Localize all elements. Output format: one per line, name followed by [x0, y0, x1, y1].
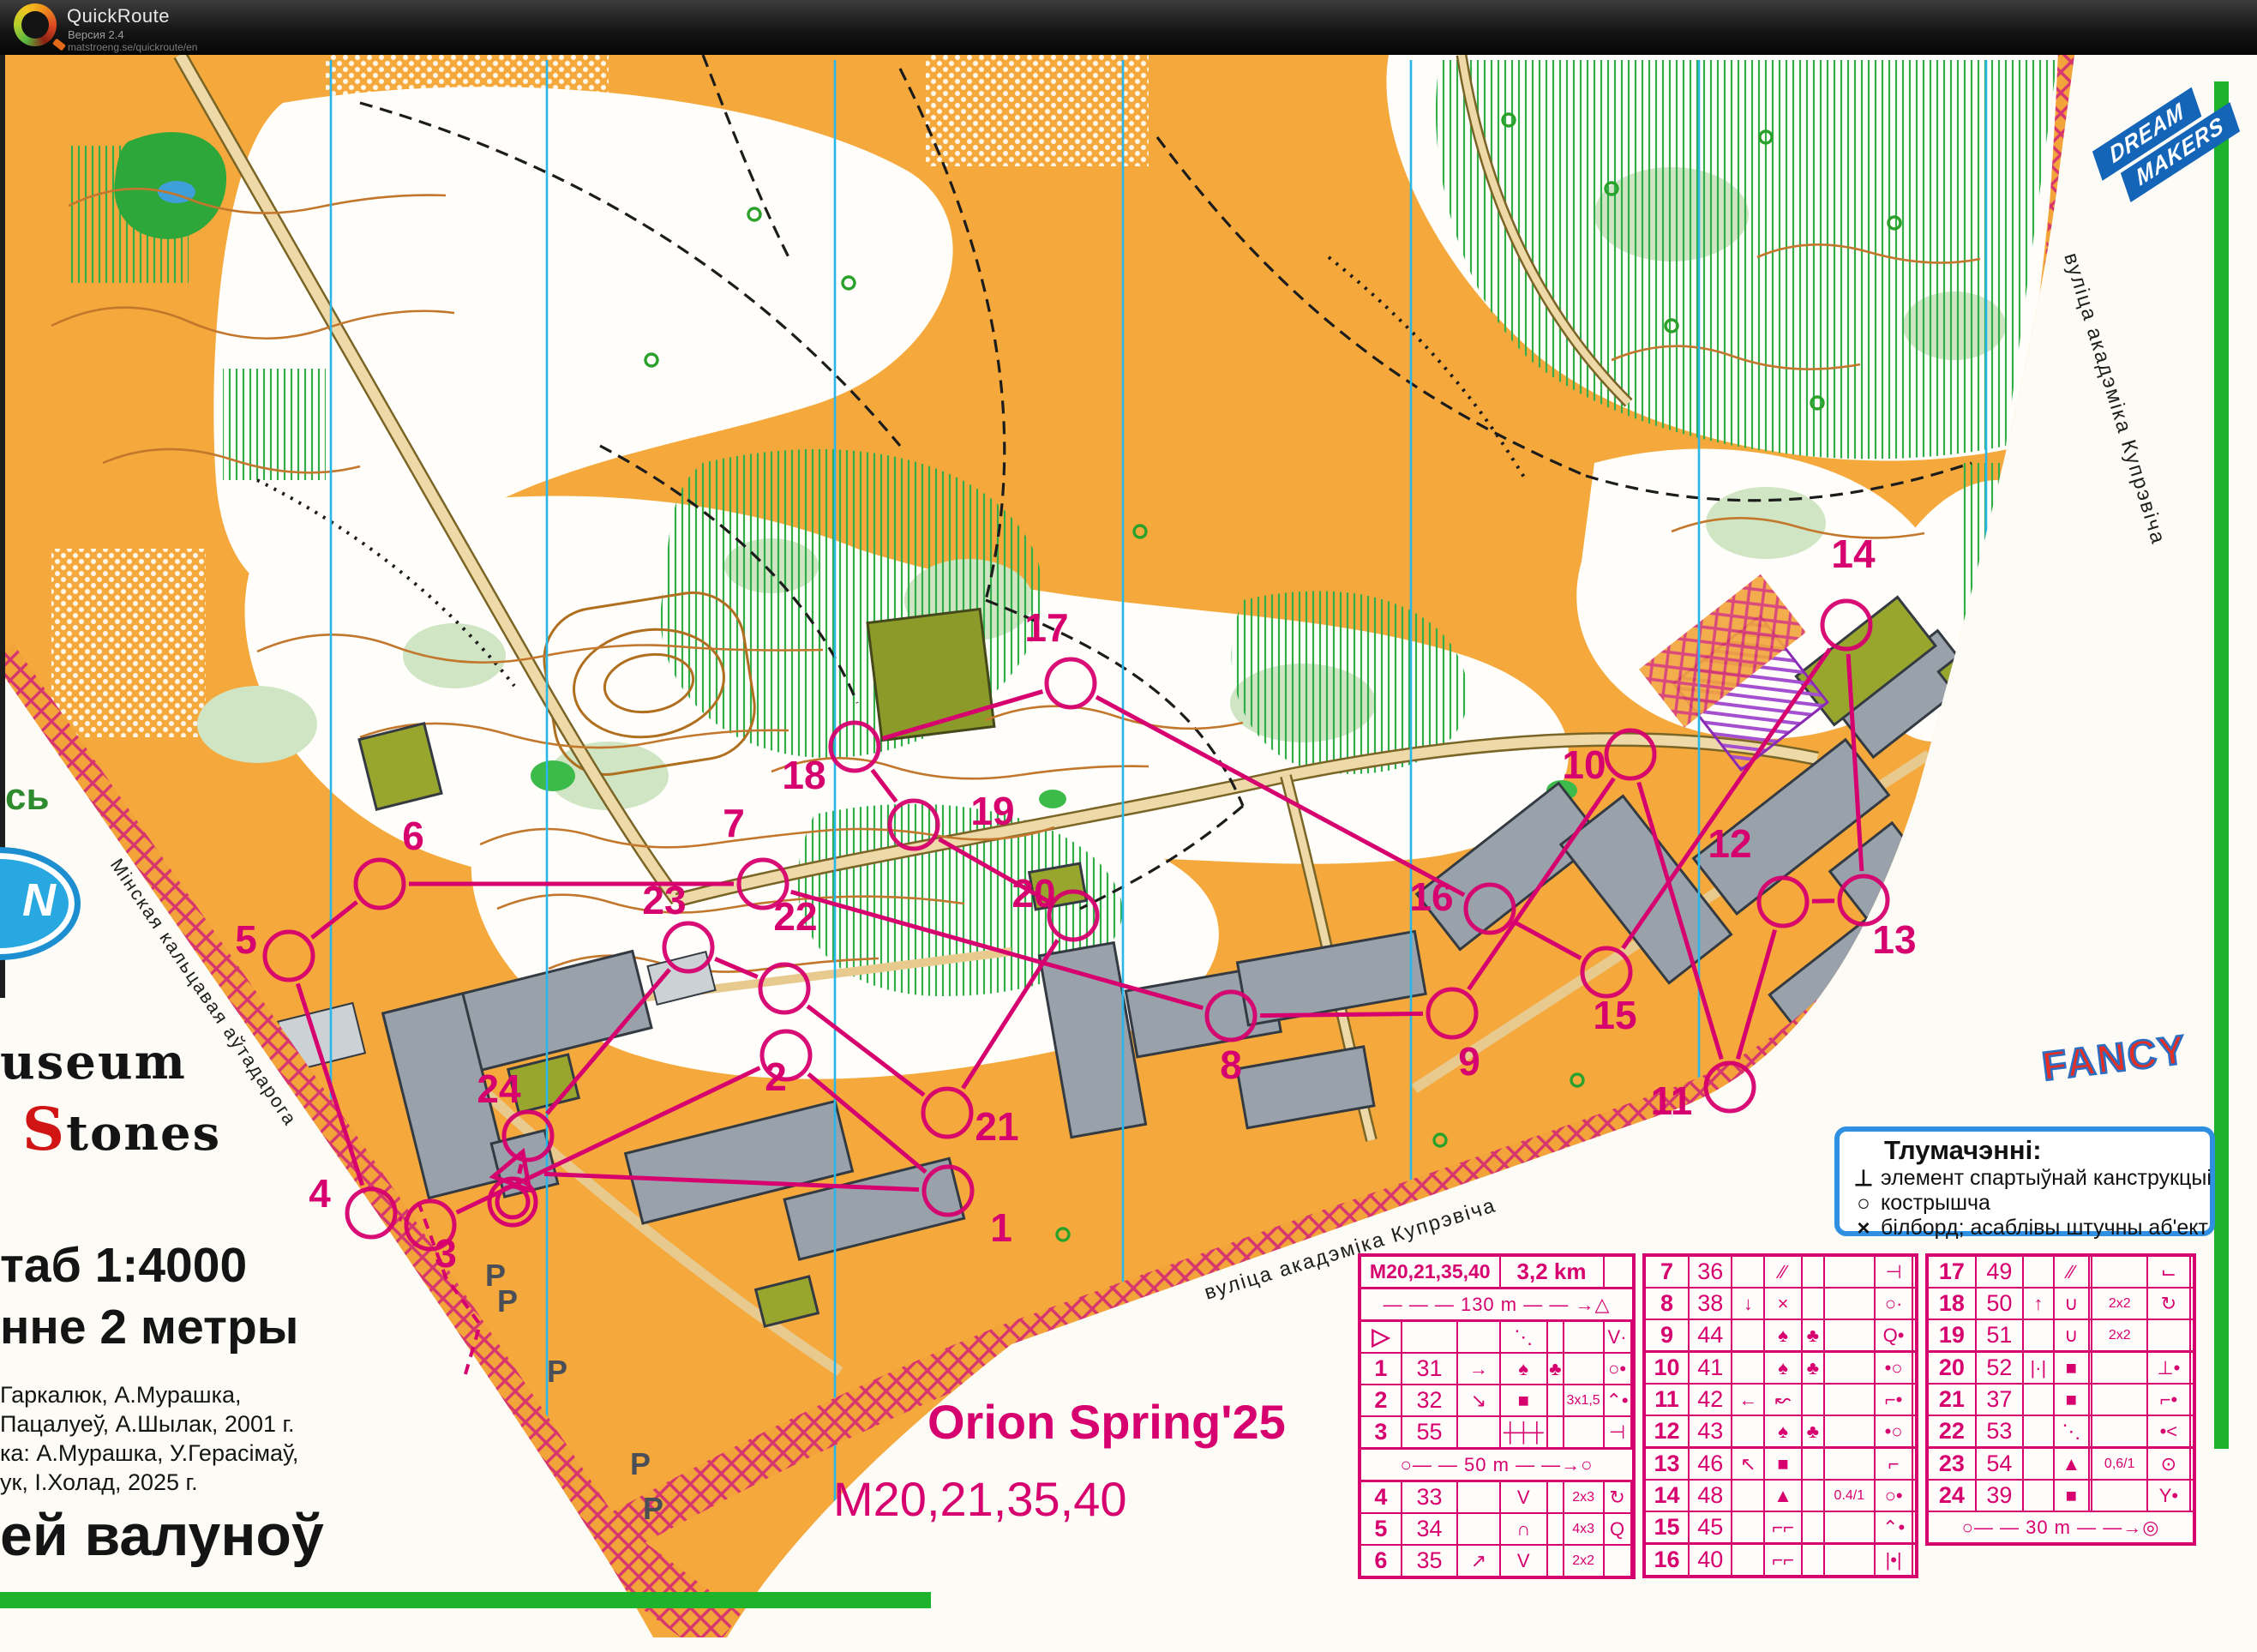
- ctrl-desc-cell: [1824, 1352, 1875, 1385]
- ctrl-desc-row: 1243♠♣•○: [1644, 1415, 1917, 1448]
- side-text: сь: [5, 776, 50, 819]
- ctrl-desc-cell: 44: [1689, 1319, 1732, 1352]
- ctrl-desc-cell: [1631, 1385, 1634, 1416]
- ctrl-desc-cell: V: [1500, 1481, 1548, 1514]
- control-number: 14: [1831, 532, 1876, 576]
- ctrl-desc-cell: 46: [1689, 1448, 1732, 1481]
- ctrl-desc-row: ▷⋱V·: [1360, 1321, 1634, 1354]
- ctrl-desc-cell: ×: [1764, 1288, 1802, 1319]
- ctrl-desc-cell: 12: [1644, 1415, 1689, 1448]
- ctrl-desc-cell: ♣: [1802, 1319, 1824, 1352]
- ctrl-desc-cell: [1457, 1513, 1499, 1545]
- ctrl-desc-cell: [1732, 1415, 1764, 1448]
- ctrl-desc-cell: ↜: [1764, 1384, 1802, 1415]
- ctrl-desc-cell: 3x1,5: [1564, 1385, 1604, 1416]
- ctrl-desc-cell: ⌙: [2147, 1255, 2190, 1288]
- ctrl-desc-cell: 4: [1360, 1481, 1402, 1514]
- ctrl-desc-cell: [2190, 1319, 2194, 1352]
- map-border-right: [2214, 81, 2229, 1449]
- ctrl-desc-cell: ■: [2054, 1352, 2089, 1385]
- ctrl-desc-cell: [2190, 1415, 2194, 1448]
- ctrl-desc-cell: ⊣: [1604, 1416, 1631, 1449]
- course-leg-line: [1260, 1013, 1423, 1015]
- ctrl-desc-cell: [1732, 1544, 1764, 1577]
- ctrl-desc-cell: [1457, 1321, 1499, 1354]
- ctrl-desc-row: 1142←↜⌐•: [1644, 1384, 1917, 1415]
- ctrl-desc-cell: [1604, 1545, 1631, 1577]
- map-border-bottom: [0, 1592, 931, 1608]
- ctrl-desc-cell: 11: [1644, 1384, 1689, 1415]
- ctrl-desc-cell: [1547, 1481, 1564, 1514]
- ctrl-desc-cell: 0.4/1: [1824, 1480, 1875, 1511]
- ctrl-desc-cell: [1631, 1481, 1634, 1514]
- ctrl-desc-row: 635↗V2x2: [1360, 1545, 1634, 1577]
- ctrl-desc-cell: [1547, 1385, 1564, 1416]
- quickroute-header: QuickRoute Версия 2.4 matstroeng.se/quic…: [0, 0, 2257, 55]
- control-descriptions-3: 1749∕∕⌙1850↑∪2x2↻1951∪2x22052|·|■⊥•2137■…: [1925, 1253, 2196, 1546]
- control-number: 19: [970, 789, 1014, 833]
- ctrl-desc-cell: [1547, 1545, 1564, 1577]
- control-number: 5: [235, 917, 257, 962]
- ctrl-desc-cell: ∕∕: [1764, 1255, 1802, 1288]
- credit-line: Гаркалюк, А.Мурашка,: [0, 1380, 298, 1409]
- ctrl-desc-cell: 2x3: [1564, 1481, 1604, 1514]
- legend-item-label: білборд; асаблівы штучны аб'ект: [1881, 1216, 2208, 1241]
- ctrl-desc-cell: [1547, 1416, 1564, 1449]
- ctrl-desc-cell: ⌐⌐: [1764, 1511, 1802, 1544]
- ctrl-desc-cell: [1457, 1416, 1499, 1449]
- ctrl-desc-cell: 37: [1976, 1384, 2023, 1415]
- ctrl-desc-header-row: M20,21,35,403,2 km: [1360, 1255, 1634, 1289]
- ctrl-desc-row: 1545⌐⌐⌃•: [1644, 1511, 1917, 1544]
- ctrl-desc-cell: [1402, 1321, 1458, 1354]
- ctrl-desc-cell: 16: [1644, 1544, 1689, 1577]
- ctrl-desc-cell: ○·: [1875, 1288, 1912, 1319]
- ctrl-desc-cell: ♣: [1802, 1415, 1824, 1448]
- ctrl-desc-cell: [1824, 1544, 1875, 1577]
- ctrl-desc-cell: [2092, 1415, 2147, 1448]
- ctrl-desc-cell: [2190, 1384, 2194, 1415]
- control-descriptions-2: 736∕∕⊣838↓×○·944♠♣Q•1041♠♣•○1142←↜⌐•1243…: [1642, 1253, 1918, 1578]
- ctrl-desc-cell: [2092, 1255, 2147, 1288]
- ctrl-desc-cell: [1912, 1384, 1917, 1415]
- control-number: 22: [773, 894, 817, 939]
- control-number: 24: [477, 1066, 521, 1111]
- ctrl-desc-cell: [1912, 1255, 1917, 1288]
- control-number: 4: [309, 1171, 331, 1216]
- ctrl-desc-cell: ⌐: [1875, 1448, 1912, 1481]
- control-number: 10: [1562, 742, 1606, 787]
- club-logo-letter: N: [22, 874, 56, 927]
- ctrl-desc-cell: ♠: [1764, 1352, 1802, 1385]
- ctrl-desc-cell: [1912, 1448, 1917, 1481]
- ctrl-desc-cell: 34: [1402, 1513, 1458, 1545]
- control-number: 17: [1024, 605, 1068, 650]
- ctrl-desc-cell: [1564, 1353, 1604, 1385]
- ctrl-desc-cell: [1732, 1255, 1764, 1288]
- ctrl-desc-cell: 23: [1927, 1448, 1976, 1481]
- ctrl-desc-cell: 54: [1976, 1448, 2023, 1481]
- ctrl-desc-cell: [1802, 1448, 1824, 1481]
- ctrl-desc-cell: ■: [1500, 1385, 1548, 1416]
- ctrl-desc-cell: 2: [1360, 1385, 1402, 1416]
- ctrl-desc-cell: 48: [1689, 1480, 1732, 1511]
- ctrl-desc-cell: 31: [1402, 1353, 1458, 1385]
- museum-line2: Stones: [22, 1096, 221, 1164]
- ctrl-desc-row: 2253⋱•<: [1927, 1415, 2194, 1448]
- ctrl-desc-cell: ┼┼┼: [1500, 1416, 1548, 1449]
- ctrl-desc-row: 1640⌐⌐|•|: [1644, 1544, 1917, 1577]
- ctrl-desc-cell: 15: [1644, 1511, 1689, 1544]
- museum-rest: tones: [66, 1105, 221, 1162]
- ctrl-desc-row: 2354▲0,6/1⊙: [1927, 1448, 2194, 1481]
- ctrl-desc-cell: [1631, 1513, 1634, 1545]
- ctrl-desc-cell: [1631, 1545, 1634, 1577]
- museum-initial: S: [22, 1096, 66, 1164]
- ctrl-desc-cell: 10: [1644, 1352, 1689, 1385]
- ctrl-desc-row: 838↓×○·: [1644, 1288, 1917, 1319]
- parking-letter: P: [643, 1491, 663, 1526]
- ctrl-desc-cell: ○— — 50 m — —→○: [1360, 1449, 1634, 1481]
- ctrl-desc-cell: [1912, 1480, 1917, 1511]
- ctrl-desc-cell: 5: [1360, 1513, 1402, 1545]
- ctrl-desc-cell: [2023, 1448, 2054, 1481]
- ctrl-desc-cell: ⌐•: [1875, 1384, 1912, 1415]
- ctrl-desc-cell: [2190, 1480, 2194, 1511]
- ctrl-desc-cell: 2x2: [1564, 1545, 1604, 1577]
- ctrl-desc-row: 1951∪2x2: [1927, 1319, 2194, 1352]
- ctrl-desc-row: 2439■Y•: [1927, 1480, 2194, 1511]
- ctrl-desc-cell: [2190, 1352, 2194, 1385]
- ctrl-desc-cell: ■: [2054, 1384, 2089, 1415]
- ctrl-desc-cell: Y•: [2147, 1480, 2190, 1511]
- ctrl-desc-cell: [1564, 1321, 1604, 1354]
- ctrl-desc-cell: ♣: [1802, 1352, 1824, 1385]
- credit-line: Пацалуеў, А.Шылак, 2001 г.: [0, 1409, 298, 1439]
- ctrl-desc-cell: [2023, 1255, 2054, 1288]
- ctrl-desc-cell: [1824, 1384, 1875, 1415]
- ctrl-desc-cell: 4x3: [1564, 1513, 1604, 1545]
- control-number: 16: [1409, 874, 1453, 919]
- ctrl-desc-row: 1346↖■⌐: [1644, 1448, 1917, 1481]
- control-number: 1: [990, 1205, 1012, 1250]
- ctrl-desc-cell: [1457, 1481, 1499, 1514]
- ctrl-desc-cell: [1824, 1415, 1875, 1448]
- ctrl-desc-cell: [1912, 1352, 1917, 1385]
- ctrl-desc-cell: [1547, 1321, 1564, 1354]
- ctrl-desc-cell: 14: [1644, 1480, 1689, 1511]
- ctrl-desc-row: 2137■⌐•: [1927, 1384, 2194, 1415]
- ctrl-desc-cell: [1824, 1319, 1875, 1352]
- ctrl-desc-row: 1850↑∪2x2↻: [1927, 1288, 2194, 1319]
- legend-symbol-icon: ○: [1846, 1190, 1881, 1216]
- ctrl-desc-cell: ▲: [1764, 1480, 1802, 1511]
- ctrl-desc-cell: [2190, 1288, 2194, 1319]
- ctrl-desc-cell: 43: [1689, 1415, 1732, 1448]
- control-number: 18: [782, 753, 825, 797]
- ctrl-desc-cell: 2x2: [2092, 1319, 2147, 1352]
- ctrl-desc-cell: ←: [1732, 1384, 1764, 1415]
- legend-item: ×білборд; асаблівы штучны аб'ект: [1846, 1216, 2210, 1241]
- ctrl-desc-cell: 39: [1976, 1480, 2023, 1511]
- ctrl-desc-cell: 55: [1402, 1416, 1458, 1449]
- legend-item-label: элемент спартыўнай канструкцыі: [1881, 1166, 2212, 1191]
- app-url[interactable]: matstroeng.se/quickroute/en: [68, 41, 197, 53]
- ctrl-desc-cell: [1732, 1480, 1764, 1511]
- legend-title: Тлумачэнні:: [1884, 1135, 2210, 1166]
- legend-box: Тлумачэнні: ⊥элемент спартыўнай канструк…: [1834, 1126, 2215, 1236]
- ctrl-desc-cell: [1802, 1480, 1824, 1511]
- credit-line: ка: А.Мурашка, У.Герасімаў,: [0, 1439, 298, 1468]
- control-number: 21: [975, 1104, 1018, 1149]
- ctrl-desc-cell: ⊣: [1875, 1255, 1912, 1288]
- ctrl-desc-cell: [1732, 1352, 1764, 1385]
- ctrl-desc-cell: 38: [1689, 1288, 1732, 1319]
- control-number: 20: [1011, 871, 1055, 916]
- street-label: вуліца акадэміка Купрэвіча: [2059, 250, 2170, 548]
- control-number: 12: [1708, 821, 1751, 866]
- ctrl-desc-cell: Q: [1604, 1513, 1631, 1545]
- ctrl-desc-cell: [1802, 1511, 1824, 1544]
- ctrl-desc-cell: [1732, 1319, 1764, 1352]
- ctrl-desc-cell: •○: [1875, 1352, 1912, 1385]
- parking-letter: P: [630, 1446, 651, 1481]
- control-number: 6: [402, 814, 424, 858]
- ctrl-desc-cell: 33: [1402, 1481, 1458, 1514]
- ctrl-desc-distance-row: ○— — 30 m — —→◎: [1927, 1511, 2194, 1544]
- control-number: 15: [1593, 993, 1636, 1037]
- ctrl-desc-cell: [1547, 1513, 1564, 1545]
- parking-letter: P: [497, 1283, 518, 1319]
- ctrl-desc-cell: ○•: [1604, 1353, 1631, 1385]
- ctrl-desc-cell: [1912, 1319, 1917, 1352]
- ctrl-desc-cell: |·|: [2023, 1352, 2054, 1385]
- ctrl-desc-cell: ⋱: [1500, 1321, 1548, 1354]
- ctrl-desc-cell: [1824, 1255, 1875, 1288]
- ctrl-desc-cell: 19: [1927, 1319, 1976, 1352]
- museum-stones-title: useum Stones: [0, 1034, 221, 1164]
- ctrl-desc-cell: [1631, 1416, 1634, 1449]
- ctrl-desc-cell: ▲: [2054, 1448, 2089, 1481]
- ctrl-desc-cell: ⋱: [2054, 1415, 2089, 1448]
- ctrl-desc-cell: [2023, 1415, 2054, 1448]
- app-title: QuickRoute: [67, 5, 170, 27]
- ctrl-desc-cell: [1824, 1511, 1875, 1544]
- ctrl-desc-row: 232↘■3x1,5⌃•: [1360, 1385, 1634, 1416]
- ctrl-desc-distance-row: ○— — 50 m — —→○: [1360, 1449, 1634, 1481]
- ctrl-desc-cell: 24: [1927, 1480, 1976, 1511]
- course-classes: M20,21,35,40: [833, 1471, 1126, 1527]
- ctrl-desc-cell: 49: [1976, 1255, 2023, 1288]
- ctrl-desc-cell: ⌐•: [2147, 1384, 2190, 1415]
- ctrl-desc-cell: ♣: [1547, 1353, 1564, 1385]
- ctrl-desc-cell: ↻: [2147, 1288, 2190, 1319]
- ctrl-desc-cell: ○•: [1875, 1480, 1912, 1511]
- legend-symbol-icon: ⊥: [1846, 1165, 1881, 1192]
- ctrl-desc-cell: ■: [1764, 1448, 1802, 1481]
- ctrl-desc-cell: ■: [2054, 1480, 2089, 1511]
- ctrl-desc-row: 1448▲0.4/1○•: [1644, 1480, 1917, 1511]
- legend-item: ○кострышча: [1846, 1191, 2210, 1216]
- control-number: 8: [1220, 1042, 1242, 1087]
- ctrl-desc-cell: 35: [1402, 1545, 1458, 1577]
- ctrl-desc-cell: 40: [1689, 1544, 1732, 1577]
- ctrl-desc-cell: 51: [1976, 1319, 2023, 1352]
- ctrl-desc-cell: ↗: [1457, 1545, 1499, 1577]
- ctrl-desc-cell: ♠: [1500, 1353, 1548, 1385]
- ctrl-desc-row: 944♠♣Q•: [1644, 1319, 1917, 1352]
- ctrl-desc-cell: [1564, 1416, 1604, 1449]
- ctrl-desc-cell: V·: [1604, 1321, 1631, 1354]
- control-number: 9: [1458, 1039, 1480, 1084]
- ctrl-desc-cell: [2190, 1255, 2194, 1288]
- ctrl-desc-cell: •<: [2147, 1415, 2190, 1448]
- ctrl-desc-cell: ⌃•: [1604, 1385, 1631, 1416]
- ctrl-desc-row: 433V2x3↻: [1360, 1481, 1634, 1514]
- ctrl-desc-cell: 53: [1976, 1415, 2023, 1448]
- ctrl-desc-cell: [2023, 1319, 2054, 1352]
- control-number: 3: [435, 1231, 457, 1276]
- ctrl-desc-cell: →: [1457, 1353, 1499, 1385]
- control-number: 7: [723, 801, 745, 845]
- control-number: 11: [1651, 1078, 1693, 1123]
- ctrl-desc-cell: [2023, 1384, 2054, 1415]
- ctrl-desc-row: 355┼┼┼⊣: [1360, 1416, 1634, 1449]
- ctrl-desc-cell: ⊥•: [2147, 1352, 2190, 1385]
- ctrl-desc-cell: — — — 130 m — — →△: [1360, 1289, 1634, 1321]
- quickroute-logo-icon: [14, 3, 57, 46]
- ctrl-desc-cell: ∕∕: [2054, 1255, 2089, 1288]
- ctrl-desc-cell: 3,2 km: [1500, 1255, 1604, 1289]
- quickroute-window: Мінская кальцавая аўтадарогавуліца акадэ…: [0, 0, 2257, 1652]
- ctrl-desc-cell: 22: [1927, 1415, 1976, 1448]
- map-credits: Гаркалюк, А.Мурашка,Пацалуеў, А.Шылак, 2…: [0, 1380, 298, 1497]
- course-leg-line: [519, 1164, 522, 1174]
- ctrl-desc-cell: [1912, 1288, 1917, 1319]
- ctrl-desc-cell: V: [1500, 1545, 1548, 1577]
- ctrl-desc-cell: ⌃•: [1875, 1511, 1912, 1544]
- ctrl-desc-cell: [1912, 1511, 1917, 1544]
- ctrl-desc-cell: 13: [1644, 1448, 1689, 1481]
- ctrl-desc-cell: 17: [1927, 1255, 1976, 1288]
- ctrl-desc-cell: 20: [1927, 1352, 1976, 1385]
- ctrl-desc-cell: ♠: [1764, 1415, 1802, 1448]
- ctrl-desc-cell: [2147, 1319, 2190, 1352]
- ctrl-desc-row: 1041♠♣•○: [1644, 1352, 1917, 1385]
- ctrl-desc-cell: [1802, 1288, 1824, 1319]
- ctrl-desc-cell: ∪: [2054, 1319, 2089, 1352]
- legend-symbol-icon: ×: [1846, 1215, 1881, 1241]
- ctrl-desc-cell: 18: [1927, 1288, 1976, 1319]
- ctrl-desc-cell: 52: [1976, 1352, 2023, 1385]
- ctrl-desc-cell: 8: [1644, 1288, 1689, 1319]
- course-leg-line: [1812, 901, 1834, 902]
- ctrl-desc-cell: ∪: [2054, 1288, 2089, 1319]
- parking-letter: P: [547, 1354, 567, 1389]
- ctrl-desc-cell: [1912, 1415, 1917, 1448]
- ctrl-desc-cell: ↑: [2023, 1288, 2054, 1319]
- legend-item-label: кострышча: [1881, 1191, 1990, 1216]
- ctrl-desc-cell: 7: [1644, 1255, 1689, 1288]
- ctrl-desc-cell: 3: [1360, 1416, 1402, 1449]
- control-number: 13: [1872, 917, 1916, 962]
- ctrl-desc-cell: [1802, 1544, 1824, 1577]
- control-number: 2: [765, 1054, 787, 1099]
- ctrl-desc-cell: [2092, 1352, 2147, 1385]
- ctrl-desc-cell: ⊙: [2147, 1448, 2190, 1481]
- ctrl-desc-cell: [1802, 1255, 1824, 1288]
- ctrl-desc-cell: 21: [1927, 1384, 1976, 1415]
- ctrl-desc-cell: [1732, 1511, 1764, 1544]
- ctrl-desc-cell: ⌐⌐: [1764, 1544, 1802, 1577]
- ctrl-desc-cell: ↖: [1732, 1448, 1764, 1481]
- ctrl-desc-cell: •○: [1875, 1415, 1912, 1448]
- ctrl-desc-cell: [1824, 1288, 1875, 1319]
- ctrl-desc-cell: 32: [1402, 1385, 1458, 1416]
- ctrl-desc-cell: 41: [1689, 1352, 1732, 1385]
- ctrl-desc-cell: ↘: [1457, 1385, 1499, 1416]
- ctrl-desc-cell: [2092, 1480, 2147, 1511]
- event-title: Orion Spring'25: [927, 1394, 1286, 1450]
- ctrl-desc-cell: [1631, 1353, 1634, 1385]
- ctrl-desc-cell: 9: [1644, 1319, 1689, 1352]
- ctrl-desc-cell: ○— — 30 m — —→◎: [1927, 1511, 2194, 1544]
- ctrl-desc-cell: [2023, 1480, 2054, 1511]
- ctrl-desc-cell: |•|: [1875, 1544, 1912, 1577]
- ctrl-desc-row: 736∕∕⊣: [1644, 1255, 1917, 1288]
- ctrl-desc-row: 131→♠♣○•: [1360, 1353, 1634, 1385]
- ctrl-desc-cell: 36: [1689, 1255, 1732, 1288]
- ctrl-desc-cell: ↻: [1604, 1481, 1631, 1514]
- map-scale-text: таб 1:4000: [0, 1237, 247, 1294]
- ctrl-desc-cell: Q•: [1875, 1319, 1912, 1352]
- ctrl-desc-cell: [2092, 1384, 2147, 1415]
- legend-item: ⊥элемент спартыўнай канструкцыі: [1846, 1166, 2210, 1191]
- ctrl-desc-cell: 1: [1360, 1353, 1402, 1385]
- ctrl-desc-cell: [1631, 1321, 1634, 1354]
- ctrl-desc-cell: 2x2: [2092, 1288, 2147, 1319]
- ctrl-desc-row: 534∩4x3Q: [1360, 1513, 1634, 1545]
- ctrl-desc-cell: 6: [1360, 1545, 1402, 1577]
- ctrl-desc-cell: [1912, 1544, 1917, 1577]
- ctrl-desc-distance-row: — — — 130 m — — →△: [1360, 1289, 1634, 1321]
- ctrl-desc-cell: ∩: [1500, 1513, 1548, 1545]
- ctrl-desc-cell: ▷: [1360, 1321, 1402, 1354]
- credit-line: ук, І.Холад, 2025 г.: [0, 1468, 298, 1497]
- ctrl-desc-cell: ♠: [1764, 1319, 1802, 1352]
- ctrl-desc-row: 2052|·|■⊥•: [1927, 1352, 2194, 1385]
- ctrl-desc-cell: [2190, 1448, 2194, 1481]
- ctrl-desc-row: 1749∕∕⌙: [1927, 1255, 2194, 1288]
- map-title-fragment: ей валуноў: [0, 1502, 324, 1569]
- ctrl-desc-cell: M20,21,35,40: [1360, 1255, 1500, 1289]
- ctrl-desc-cell: [1802, 1384, 1824, 1415]
- ctrl-desc-cell: 45: [1689, 1511, 1732, 1544]
- control-number: 23: [642, 878, 686, 922]
- map-contour-text: нне 2 метры: [0, 1299, 298, 1355]
- control-descriptions-1: M20,21,35,403,2 km— — — 130 m — — →△▷⋱V·…: [1358, 1253, 1636, 1579]
- ctrl-desc-cell: 0,6/1: [2092, 1448, 2147, 1481]
- museum-line1: useum: [0, 1034, 221, 1090]
- app-version: Версия 2.4: [68, 28, 124, 41]
- ctrl-desc-cell: 50: [1976, 1288, 2023, 1319]
- ctrl-desc-cell: [1604, 1255, 1634, 1289]
- ctrl-desc-cell: 42: [1689, 1384, 1732, 1415]
- ctrl-desc-cell: [1824, 1448, 1875, 1481]
- ctrl-desc-cell: ↓: [1732, 1288, 1764, 1319]
